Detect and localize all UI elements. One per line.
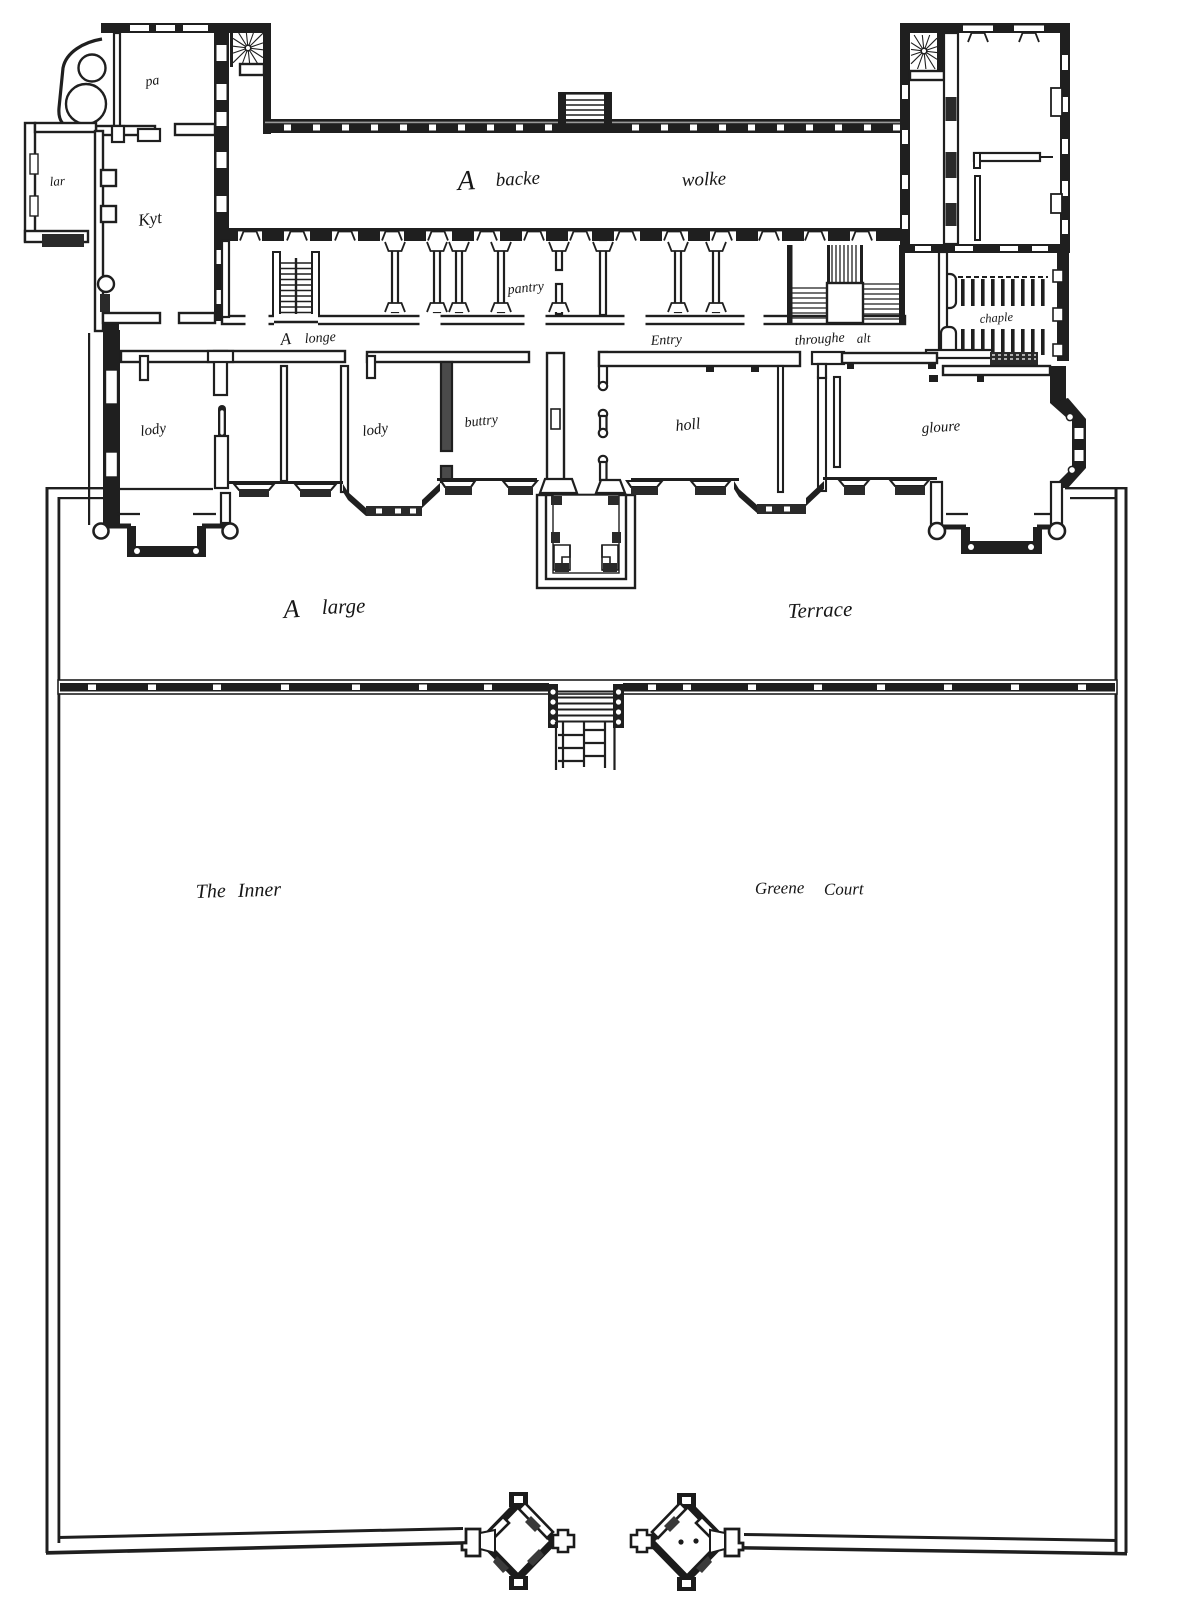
svg-text:gloure: gloure	[921, 418, 961, 437]
svg-text:pa: pa	[143, 73, 160, 90]
svg-text:Entry: Entry	[649, 332, 683, 349]
svg-text:A: A	[280, 594, 300, 624]
svg-text:Terrace: Terrace	[787, 597, 852, 623]
svg-text:Court: Court	[824, 879, 865, 899]
svg-text:longe: longe	[304, 330, 336, 347]
svg-text:alt: alt	[856, 330, 871, 346]
svg-text:wolke: wolke	[681, 168, 726, 191]
svg-text:Inner: Inner	[236, 878, 281, 902]
svg-text:large: large	[321, 593, 365, 619]
svg-text:chaple: chaple	[979, 310, 1014, 326]
svg-text:Greene: Greene	[755, 878, 805, 898]
svg-text:holl: holl	[675, 415, 702, 435]
svg-text:backe: backe	[495, 168, 540, 191]
svg-text:Kyt: Kyt	[136, 208, 164, 230]
svg-text:A: A	[455, 165, 477, 197]
svg-text:The: The	[195, 880, 226, 903]
svg-text:lar: lar	[49, 173, 66, 189]
